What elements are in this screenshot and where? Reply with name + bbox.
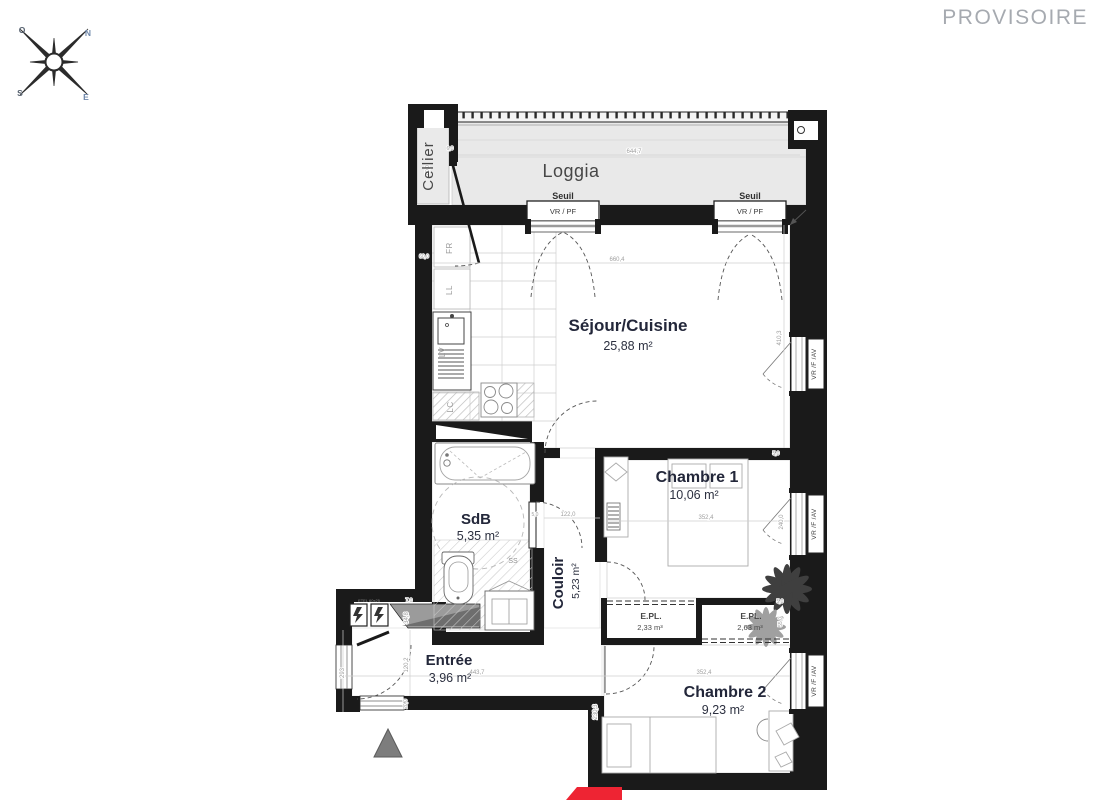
- dim-chambre2-height: 230,3: [593, 704, 599, 720]
- vr-f-av-label: VR /F /AV: [811, 508, 818, 539]
- vr-pf-label: VR / PF: [550, 207, 577, 216]
- chambre1-area: 10,06 m²: [669, 488, 718, 502]
- lc-counter: [433, 392, 479, 420]
- sdb-door: [529, 502, 536, 548]
- chambre1-label: Chambre 1: [656, 469, 739, 486]
- dim-5: 5,0: [777, 599, 784, 605]
- dim-20: 20,0: [403, 699, 409, 709]
- entree-area: 3,96 m²: [429, 671, 471, 685]
- dim-entree-height: 120,2: [404, 657, 410, 673]
- dishwasher-label: LV: [438, 347, 447, 357]
- floor-plan-page: PROVISOIRE O N S E: [0, 0, 1096, 800]
- cellier-label: Cellier: [420, 141, 437, 191]
- vr-f-av-label: VR /F /AV: [811, 348, 818, 379]
- dim-entree-width: 443,7: [469, 670, 485, 676]
- seuil-label: Seuil: [739, 191, 761, 201]
- lc-label: LC: [446, 401, 455, 412]
- chambre2-furniture: [602, 711, 799, 773]
- placard-right-label: E.PL.: [740, 611, 761, 621]
- dim-293: 293: [340, 667, 346, 678]
- dim-55: 55,0: [778, 617, 784, 627]
- dim-chambre1-width: 352,4: [698, 515, 714, 521]
- chambre2-label: Chambre 2: [684, 684, 767, 701]
- sdb-area: 5,35 m²: [457, 529, 499, 543]
- couloir-area: 5,23 m²: [570, 563, 582, 599]
- fridge-label: FR: [445, 242, 454, 254]
- red-accent-bar: [566, 787, 622, 800]
- toilet: [442, 552, 474, 604]
- dim-6: 6,0: [447, 146, 454, 152]
- vr-pf-label: VR / PF: [737, 207, 764, 216]
- floor-drain-label: SS: [508, 558, 518, 565]
- cooktop: [481, 383, 517, 417]
- dim-sejour-width: 660,4: [609, 257, 625, 263]
- sdb-label: SdB: [461, 511, 491, 528]
- couloir-label: Couloir: [550, 557, 567, 610]
- dim-couloir-width: 122,0: [560, 512, 576, 518]
- entree-bottom-window: [360, 696, 404, 710]
- entree-left-window: [336, 645, 352, 689]
- chambre2-area: 9,23 m²: [702, 703, 744, 717]
- dim-5: 5,0: [773, 451, 780, 457]
- dim-7: 7,0: [406, 598, 413, 604]
- dim-sejour-height: 410,3: [777, 330, 783, 346]
- placard-right-volume: 2,63 m³: [737, 623, 763, 632]
- dim-loggia-width: 644,7: [626, 149, 642, 155]
- dim-5: 5,0: [532, 512, 539, 518]
- dim-chambre1-height: 240,0: [779, 514, 785, 530]
- entree-label: Entrée: [426, 652, 473, 669]
- seuil-label: Seuil: [552, 191, 574, 201]
- dim-wall-348: 34,8: [404, 612, 410, 624]
- placard-left-volume: 2,33 m³: [637, 623, 663, 632]
- loggia-label: Loggia: [542, 161, 600, 181]
- bathtub: [435, 443, 535, 484]
- etel-label: ETEL 60x25: [358, 598, 381, 603]
- sejour-label: Séjour/Cuisine: [568, 316, 687, 335]
- floor-plan-drawing: ETEL 60x25: [0, 0, 1096, 800]
- washer-label: LL: [445, 285, 454, 295]
- radiator: [607, 503, 620, 530]
- vr-f-av-label: VR /F /AV: [811, 665, 818, 696]
- couloir-floor: [544, 458, 600, 645]
- sejour-area: 25,88 m²: [603, 339, 652, 353]
- entrance-triangle-marker: [374, 729, 402, 757]
- electrical-panels: ETEL 60x25: [350, 598, 388, 626]
- placard-left-label: E.PL.: [640, 611, 661, 621]
- dim-60-kitchen: 60,0: [419, 254, 429, 260]
- dim-chambre2-width: 352,4: [696, 670, 712, 676]
